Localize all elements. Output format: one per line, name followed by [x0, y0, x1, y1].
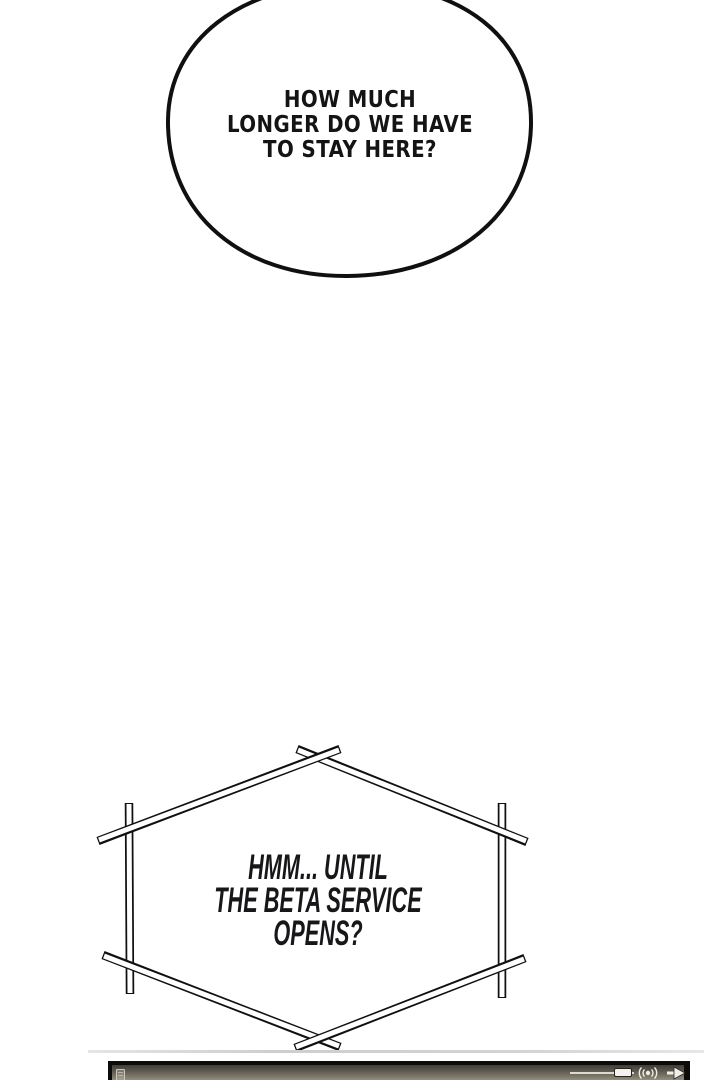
media-player-bar-surface: [112, 1065, 684, 1080]
volume-slider-handle[interactable]: [614, 1068, 632, 1077]
panel-border-smudge: [88, 1050, 704, 1053]
dialogue-rounded-bubble: HOW MUCH LONGER DO WE HAVE TO STAY HERE?: [195, 88, 505, 163]
dialogue-line: TO STAY HERE?: [195, 138, 505, 163]
note-icon[interactable]: [116, 1069, 125, 1080]
dialogue-line: OPENS?: [194, 917, 442, 950]
comic-page: HOW MUCH LONGER DO WE HAVE TO STAY HERE?…: [0, 0, 720, 1080]
dialogue-line: THE BETA SERVICE: [194, 884, 442, 917]
next-arrow-icon[interactable]: [666, 1066, 688, 1080]
dialogue-line: HOW MUCH: [195, 88, 505, 113]
media-player-bar[interactable]: [108, 1061, 690, 1080]
dialogue-hexagon-bubble: HMM... UNTIL THE BETA SERVICE OPENS?: [194, 851, 442, 950]
speaker-icon[interactable]: [636, 1066, 660, 1080]
dialogue-line: LONGER DO WE HAVE: [195, 113, 505, 138]
dialogue-line: HMM... UNTIL: [194, 851, 442, 884]
